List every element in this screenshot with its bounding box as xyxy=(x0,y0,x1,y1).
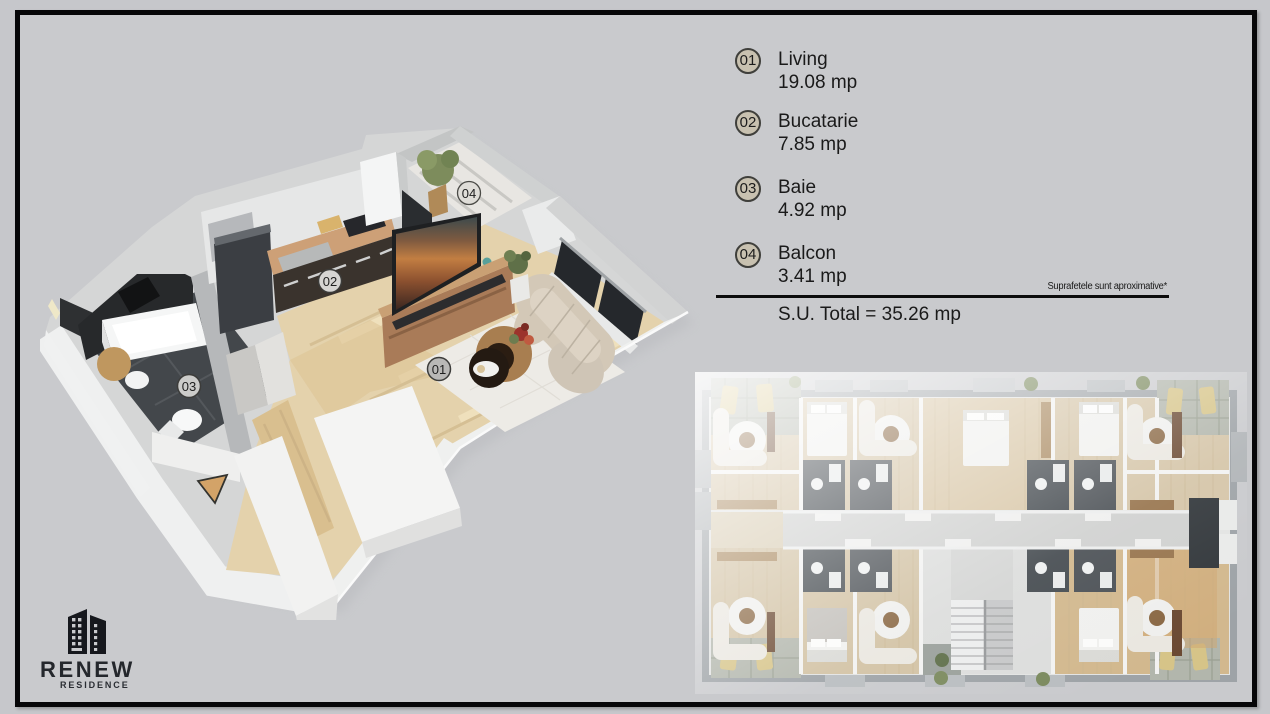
svg-text:04: 04 xyxy=(462,186,476,201)
svg-text:02: 02 xyxy=(323,274,337,289)
svg-text:01: 01 xyxy=(432,362,446,377)
svg-text:03: 03 xyxy=(182,379,196,394)
